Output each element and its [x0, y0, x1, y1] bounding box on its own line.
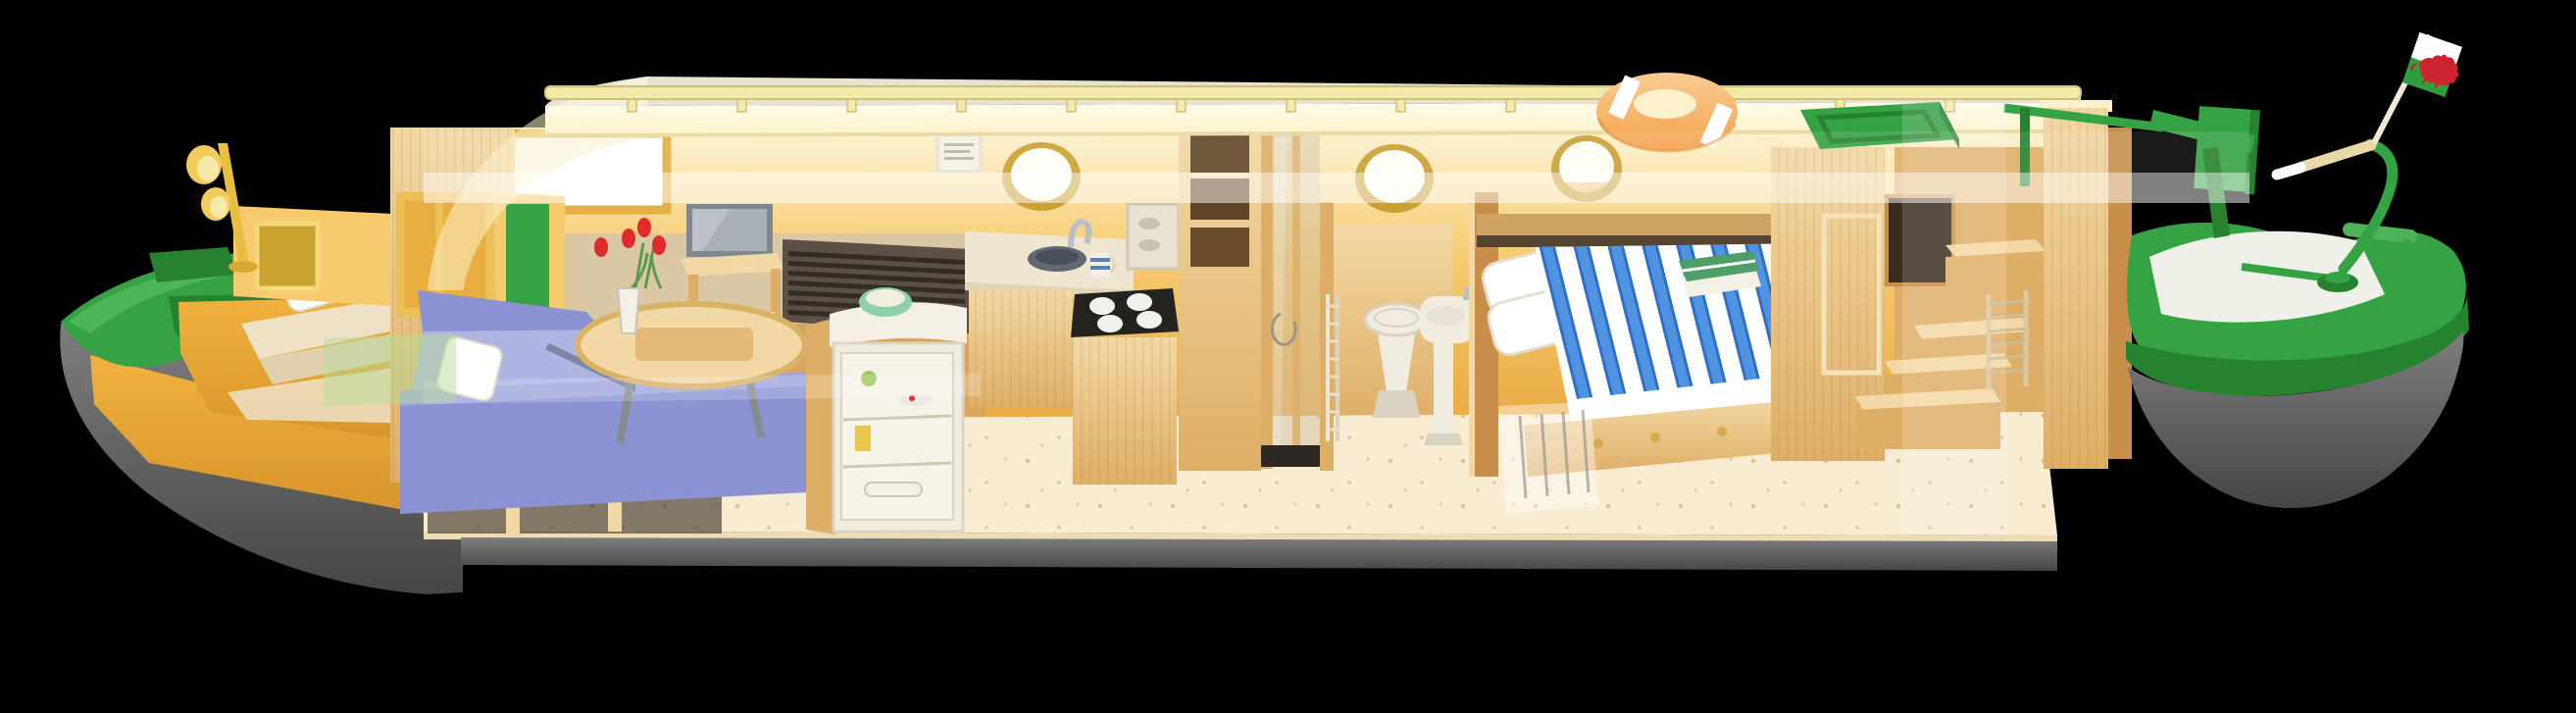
tulip-flower [594, 237, 608, 257]
nav-lamp-lower-face [210, 196, 227, 218]
table-inlay [635, 328, 753, 361]
bow-bulkhead-window [257, 224, 318, 288]
drawer-knob [1650, 433, 1660, 442]
galley-sink-basin [1035, 249, 1079, 265]
shelf-opening-lower [1190, 228, 1249, 267]
drinks-cabinet [806, 287, 967, 535]
railing-armrest [2349, 229, 2410, 236]
tiller-arm-tip [2277, 168, 2300, 175]
narrowboat-cutaway-scene [0, 0, 2576, 713]
cabinet-wood-side [806, 318, 835, 535]
cooker-back-panel [1128, 204, 1179, 269]
under-sink-grain [969, 290, 1077, 408]
cooker-dial [1138, 239, 1160, 251]
mug-stripe [1090, 266, 1110, 270]
hob-burner [1097, 315, 1123, 332]
tulip-flower [652, 235, 666, 255]
green-bowl-inside [866, 289, 905, 307]
rail-stanchion [737, 98, 746, 112]
rail-stanchion [1287, 98, 1295, 112]
nav-lamp-upper-face [197, 156, 219, 181]
rail-stanchion [1396, 98, 1405, 112]
basin-inner [1426, 306, 1465, 326]
ghost-radiator-panel [1498, 402, 1598, 514]
drawer-knob [1717, 427, 1727, 436]
rail-stanchion [1177, 98, 1186, 112]
nav-light-pole-base [228, 261, 258, 273]
mug-stripe [1090, 258, 1110, 262]
tulip-flower [637, 218, 651, 237]
partition-edge-highlight [1469, 192, 1475, 477]
life-ring-hole [1634, 89, 1696, 119]
grab-rail-bar [545, 86, 2081, 99]
toilet-base [1373, 390, 1420, 418]
rail-stanchion [1067, 98, 1076, 112]
bow-doorway-view [506, 204, 549, 320]
tulip-flower [622, 229, 635, 248]
rail-stanchion [847, 98, 856, 112]
hob-burner [1127, 293, 1152, 311]
hob-cabinet-grain [1073, 337, 1177, 484]
basin-pedestal [1434, 343, 1453, 437]
bow-windscreen-ghost [324, 333, 456, 406]
hob-burner [1136, 311, 1162, 329]
basin-foot [1424, 433, 1463, 445]
shower-base [1261, 445, 1320, 467]
cheese-in-cabinet [855, 426, 871, 451]
narrowboat-cutaway-illustration [0, 0, 2576, 713]
hob-burner [1089, 297, 1115, 315]
vase [618, 288, 639, 333]
drawer-knob [1593, 438, 1603, 448]
mug-body [1090, 253, 1110, 277]
rail-stanchion [628, 98, 636, 112]
rail-stanchion [1506, 98, 1515, 112]
rail-stanchion [957, 98, 966, 112]
tiller-pivot-top [2325, 272, 2350, 283]
ghost-stairwell-panel [1902, 102, 2006, 535]
hob-icon [1071, 288, 1179, 337]
cooker-dial [1138, 218, 1160, 229]
bottle-in-cabinet [865, 483, 922, 496]
basin-tap-icon [1465, 286, 1469, 296]
